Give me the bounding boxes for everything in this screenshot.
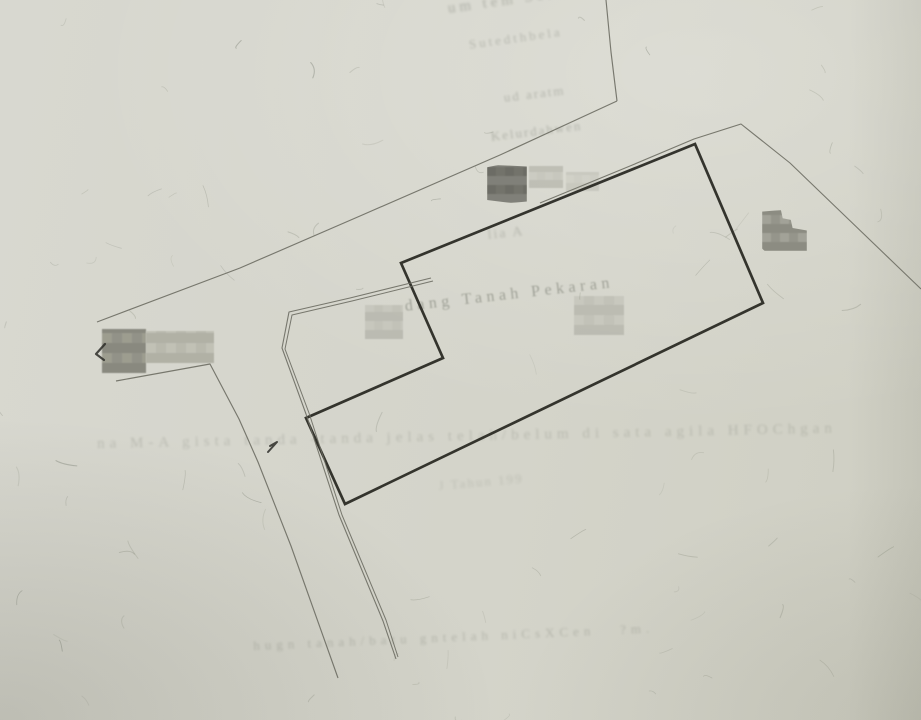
fiber-squiggle (82, 190, 88, 194)
fiber-squiggle (769, 538, 778, 546)
fiber-squiggle (810, 90, 824, 100)
fiber-squiggle (128, 541, 138, 558)
fiber-squiggle (169, 193, 177, 197)
fiber-squiggle (910, 593, 921, 602)
fiber-squiggle (162, 87, 168, 92)
fiber-squiggle (735, 213, 748, 230)
fiber-squiggle (363, 140, 383, 145)
fiber-squiggle (659, 483, 664, 495)
road-upper-edge-top (606, 0, 617, 101)
fiber-squiggle (692, 452, 704, 459)
fiber-squiggle (431, 199, 440, 201)
fiber-squiggle (842, 304, 860, 310)
fiber-squiggle (571, 529, 586, 538)
fiber-squiggle (130, 311, 136, 319)
fiber-squiggle (505, 714, 510, 720)
fiber-squiggle (878, 547, 894, 557)
fiber-squiggle (376, 412, 382, 431)
fiber-squiggle (485, 132, 494, 133)
fiber-squiggle (660, 649, 673, 654)
fiber-squiggle (673, 226, 676, 233)
road-right-edge-inner (285, 281, 433, 657)
fiber-squiggle (59, 640, 62, 651)
fiber-squiggle (54, 635, 67, 642)
fiber-squiggle (530, 355, 537, 375)
survey-tick-center (268, 442, 277, 452)
fiber-squiggle (56, 461, 77, 466)
fiber-squiggle (288, 232, 299, 238)
fiber-squiggle (313, 223, 318, 235)
road-upper-edge (97, 101, 617, 322)
fiber-squiggle (820, 660, 834, 676)
fiber-squiggle (308, 695, 314, 702)
fiber-squiggle (475, 167, 483, 173)
fiber-squiggle (61, 19, 66, 26)
sketch-svg (0, 0, 921, 720)
fiber-squiggle (50, 262, 58, 265)
fiber-squiggle (238, 464, 245, 477)
fiber-squiggle (878, 209, 882, 222)
fiber-squiggle (780, 605, 783, 618)
fiber-squiggle (646, 47, 650, 55)
fiber-squiggle (482, 611, 485, 622)
fiber-squiggle (171, 256, 174, 267)
fiber-squiggle (203, 186, 208, 207)
fiber-squiggle (821, 65, 825, 73)
fiber-squiggle (680, 390, 696, 393)
fiber-squiggle (236, 41, 241, 49)
fiber-squiggle (674, 587, 679, 592)
fiber-squiggle (17, 591, 22, 605)
fiber-squiggle (66, 497, 68, 506)
paper-fiber-texture (0, 0, 921, 720)
fiber-squiggle (833, 450, 834, 472)
parcel-sketch-lines (96, 0, 921, 678)
fiber-squiggle (122, 616, 124, 628)
fiber-squiggle (148, 189, 162, 196)
fiber-squiggle (413, 682, 419, 684)
fiber-squiggle (447, 651, 448, 669)
fiber-squiggle (830, 143, 832, 154)
fiber-squiggle (649, 691, 656, 694)
fiber-squiggle (812, 7, 823, 11)
fiber-squiggle (768, 284, 784, 298)
fiber-squiggle (849, 579, 855, 583)
fiber-squiggle (377, 4, 384, 6)
fiber-squiggle (532, 568, 540, 576)
fiber-squiggle (704, 675, 713, 678)
fiber-squiggle (119, 551, 134, 554)
fiber-squiggle (242, 493, 261, 503)
fiber-squiggle (855, 166, 863, 173)
fiber-squiggle (0, 404, 3, 416)
fiber-squiggle (5, 322, 7, 328)
fiber-squiggle (357, 288, 364, 289)
fiber-squiggle (691, 612, 705, 620)
fiber-squiggle (16, 467, 19, 486)
fiber-squiggle (183, 470, 185, 489)
fiber-squiggle (696, 260, 710, 275)
fiber-squiggle (578, 17, 584, 20)
fiber-squiggle (87, 257, 97, 263)
fiber-squiggle (82, 696, 89, 705)
fiber-squiggle (311, 63, 315, 78)
fiber-squiggle (381, 0, 384, 7)
fiber-squiggle (350, 67, 359, 72)
parcel-boundary (306, 144, 763, 504)
fiber-squiggle (411, 597, 430, 600)
scanned-land-sketch-document: um tem SelandeSutedthbelaud aratmKelurda… (0, 0, 921, 720)
fiber-squiggle (263, 509, 266, 529)
road-right-edge-outer (282, 278, 431, 659)
neighbor-boundary (540, 124, 921, 289)
fiber-squiggle (766, 469, 769, 482)
fiber-squiggle (679, 554, 698, 557)
fiber-squiggle (106, 243, 121, 249)
survey-tick-west (96, 344, 105, 360)
